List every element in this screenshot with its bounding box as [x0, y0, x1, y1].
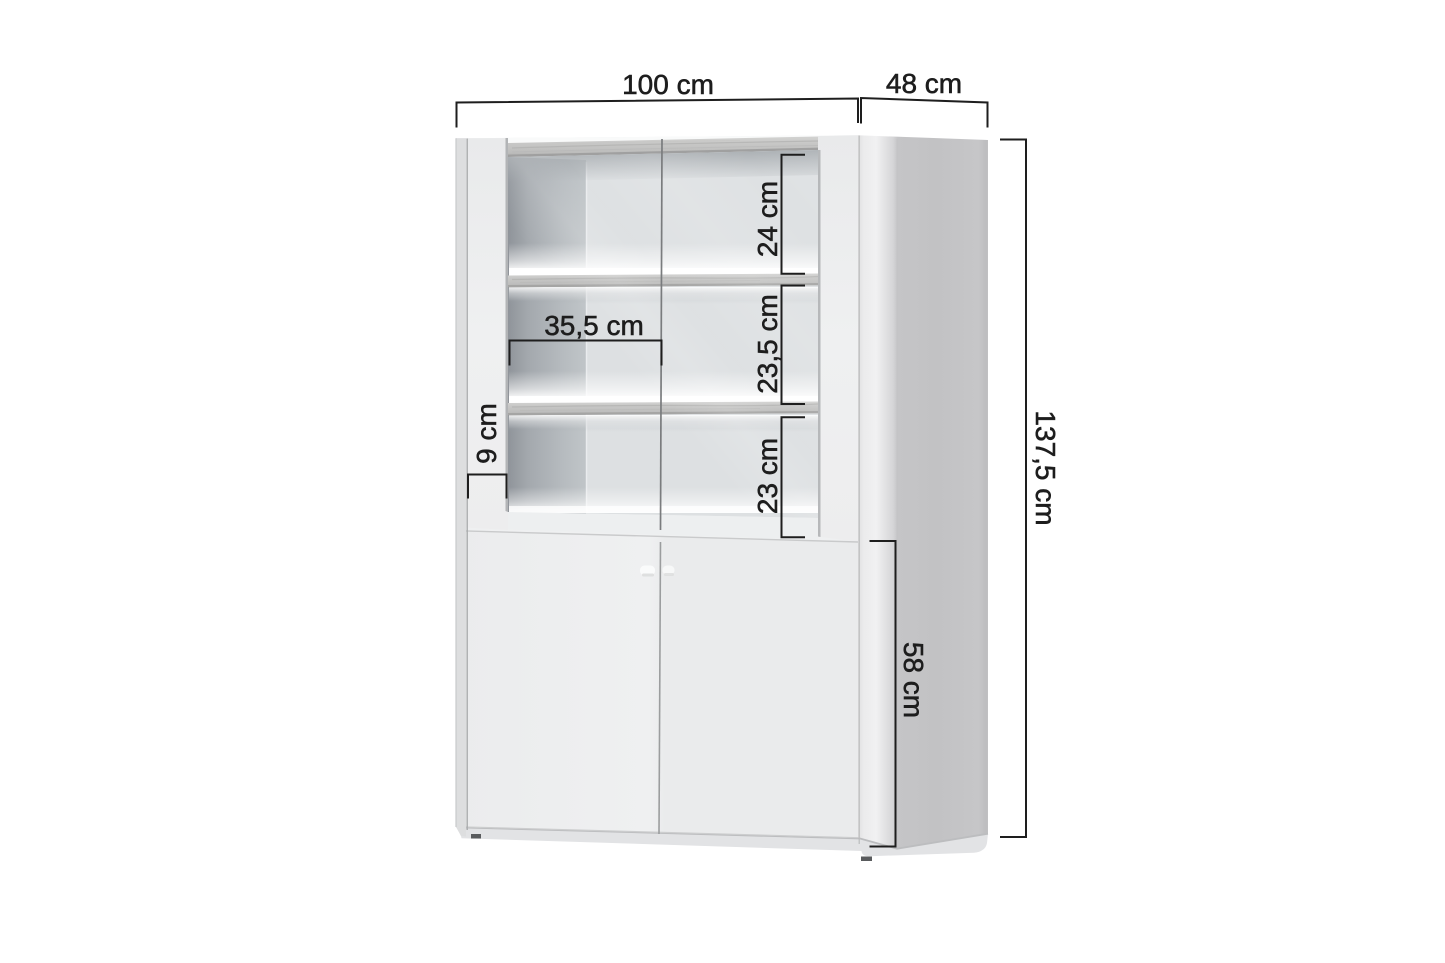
svg-text:24 cm: 24 cm: [752, 181, 783, 257]
svg-text:23,5 cm: 23,5 cm: [752, 294, 783, 394]
svg-text:9 cm: 9 cm: [471, 403, 502, 464]
svg-text:100 cm: 100 cm: [622, 69, 714, 100]
svg-text:35,5 cm: 35,5 cm: [544, 310, 644, 341]
svg-text:48 cm: 48 cm: [886, 68, 962, 99]
svg-text:137,5 cm: 137,5 cm: [1030, 410, 1061, 525]
svg-text:58 cm: 58 cm: [898, 642, 929, 718]
svg-text:23 cm: 23 cm: [752, 438, 783, 514]
